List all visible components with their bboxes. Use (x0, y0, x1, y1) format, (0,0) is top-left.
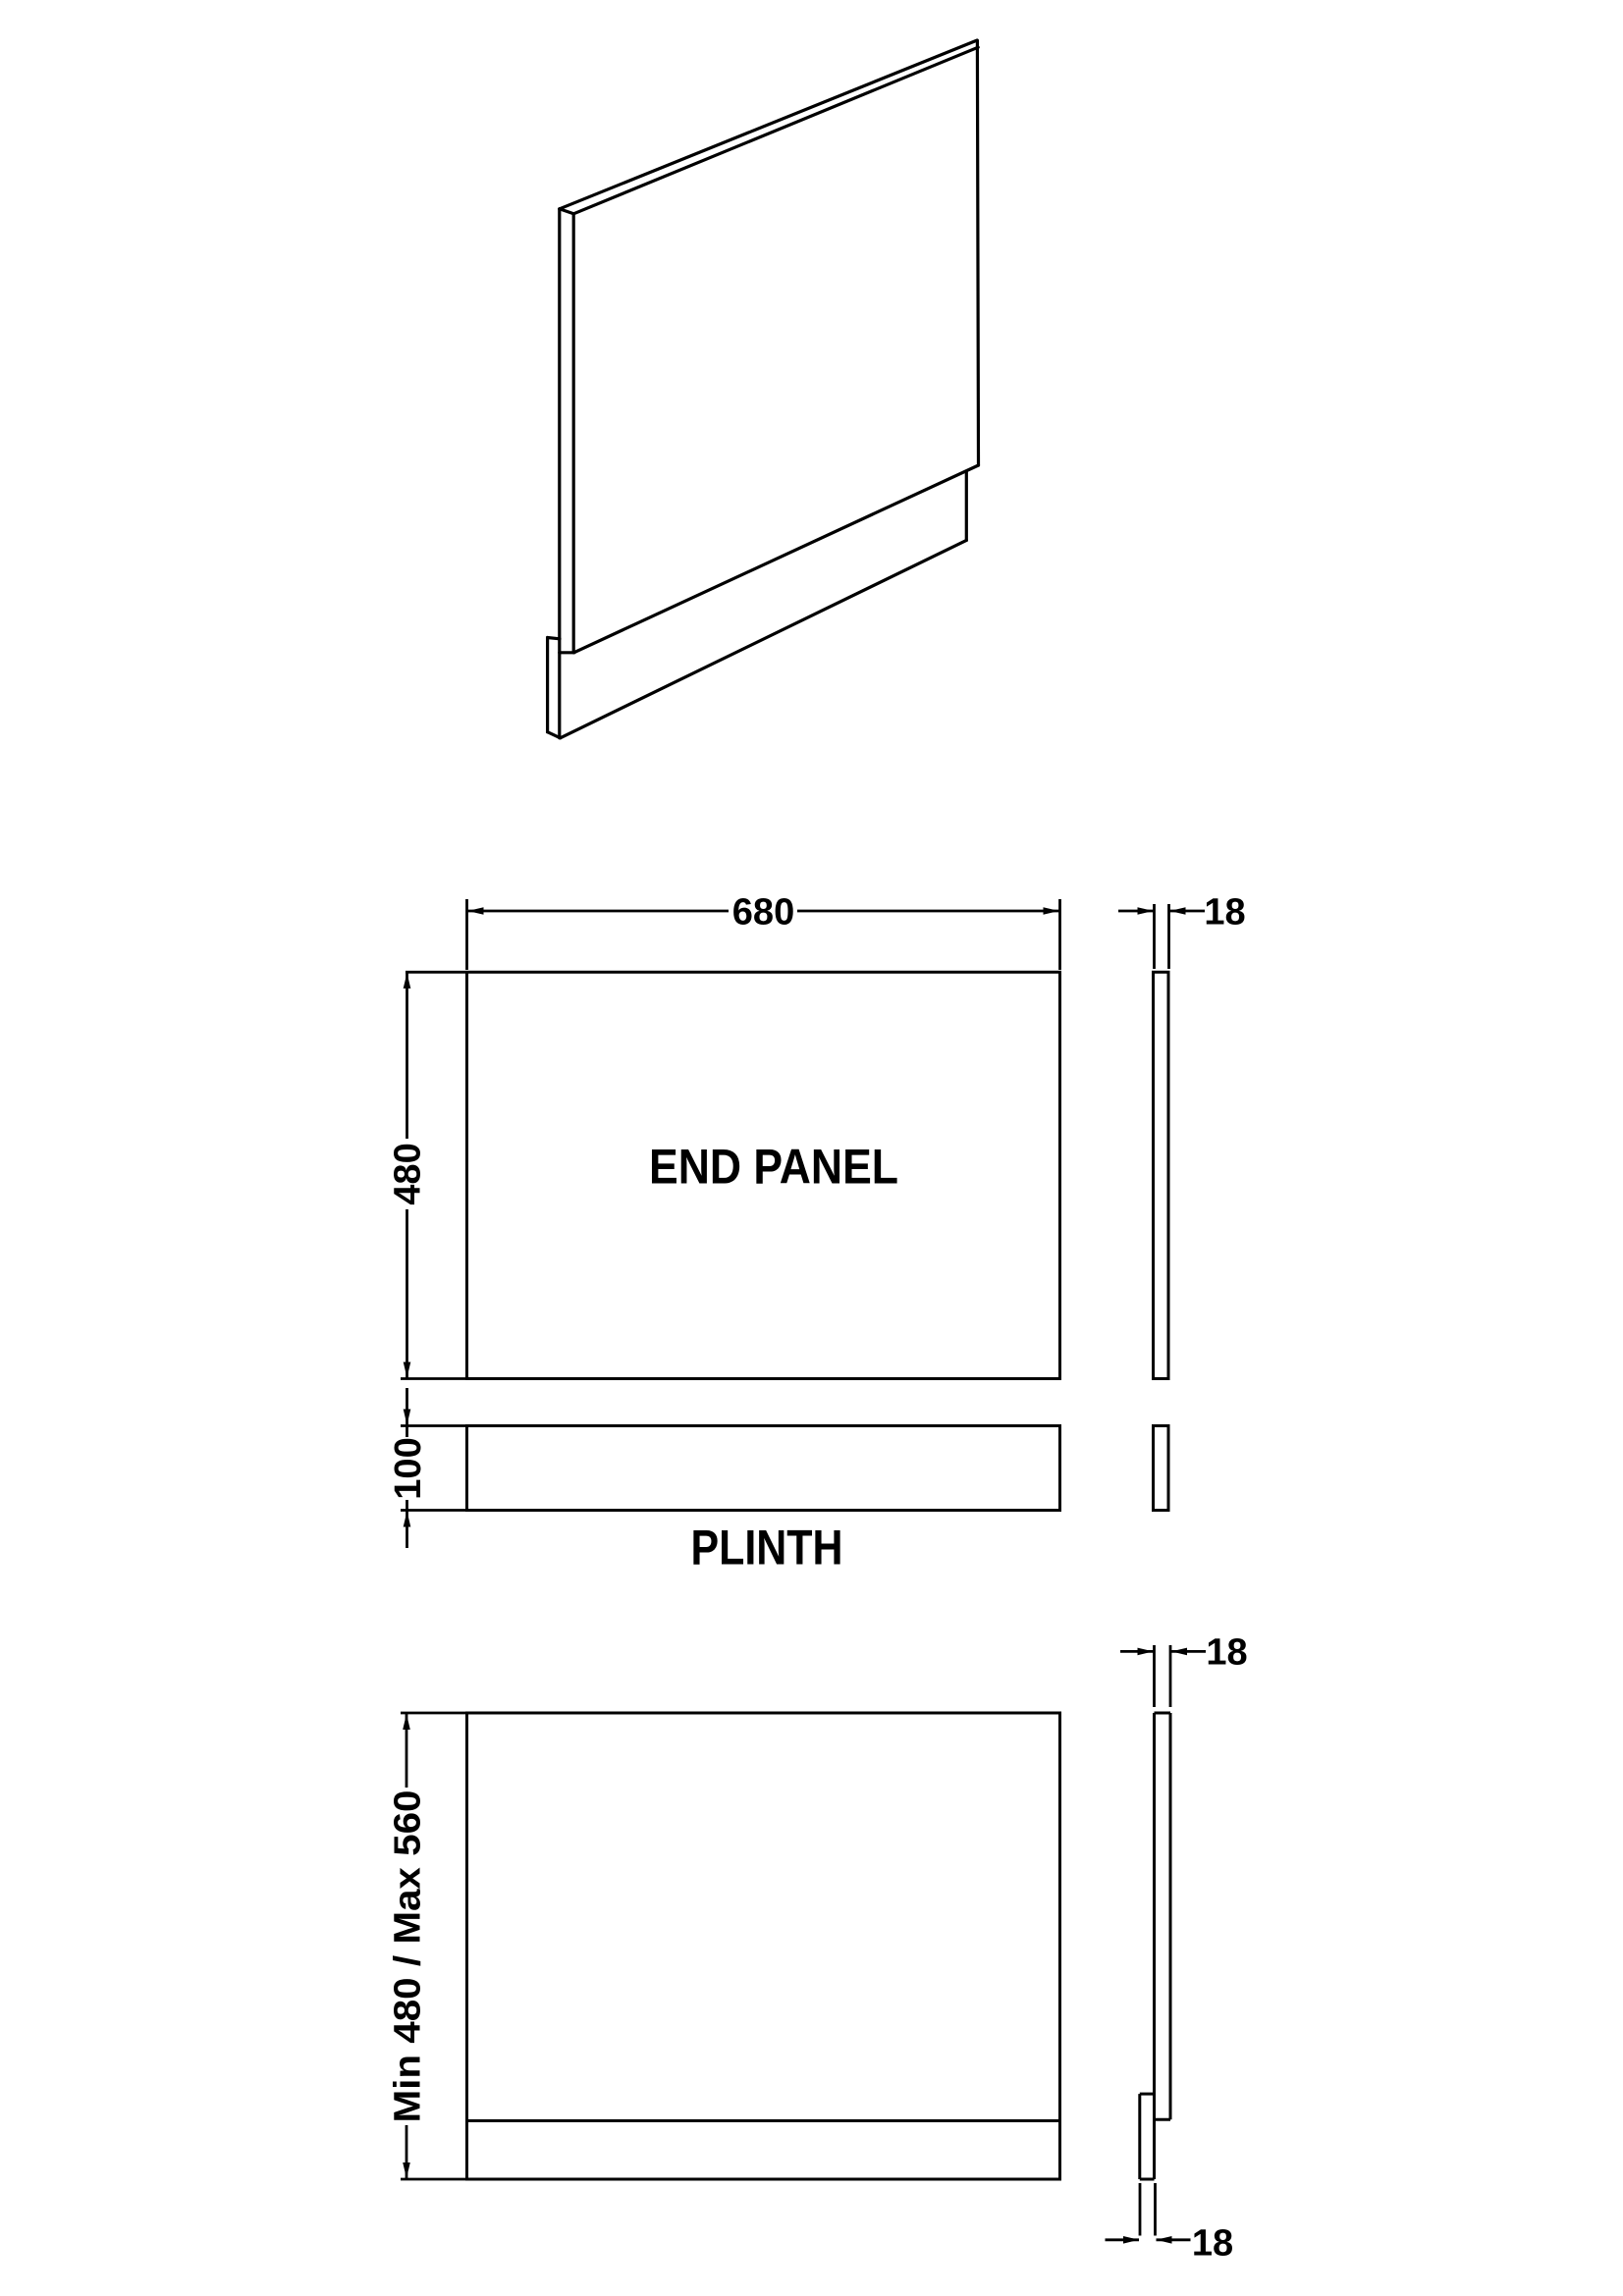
svg-text:680: 680 (732, 891, 794, 933)
svg-text:480: 480 (387, 1143, 428, 1204)
svg-text:18: 18 (1206, 1632, 1247, 1674)
svg-text:18: 18 (1192, 2223, 1233, 2265)
svg-text:Min 480 / Max 560: Min 480 / Max 560 (387, 1790, 428, 2123)
svg-text:PLINTH: PLINTH (691, 1521, 843, 1575)
svg-text:END PANEL: END PANEL (649, 1140, 898, 1195)
svg-text:100: 100 (388, 1437, 429, 1499)
svg-text:18: 18 (1204, 891, 1245, 933)
